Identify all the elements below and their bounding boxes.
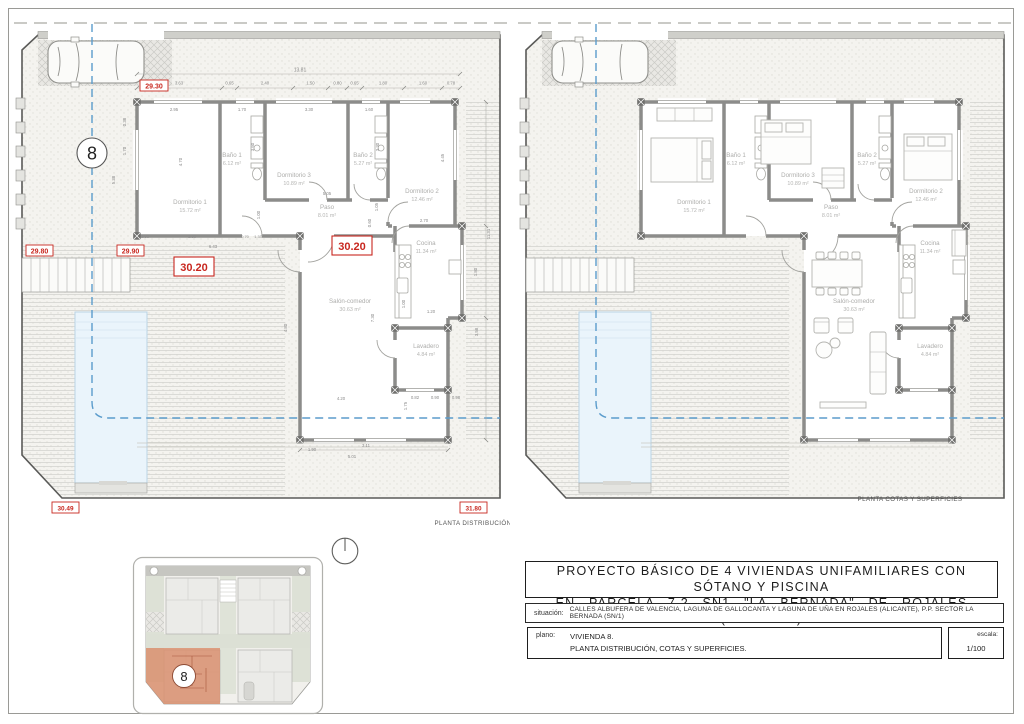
- svg-text:0.78: 0.78: [447, 81, 456, 86]
- svg-text:0.82: 0.82: [411, 395, 420, 400]
- plano-line1: VIVIENDA 8.: [570, 632, 613, 641]
- svg-text:1.60: 1.60: [419, 81, 428, 86]
- svg-text:0.80: 0.80: [333, 81, 342, 86]
- svg-text:13.81: 13.81: [294, 68, 307, 74]
- svg-text:3.30: 3.30: [375, 142, 380, 151]
- svg-text:5.05: 5.05: [323, 191, 332, 196]
- svg-text:1.75: 1.75: [403, 401, 408, 410]
- cota-29-90: 29.90: [122, 249, 140, 256]
- key-plan-house-number: 8: [180, 669, 187, 684]
- house-number-bubble: 8: [77, 138, 107, 168]
- left-plan-caption: PLANTA DISTRIBUCIÓN: [435, 520, 510, 527]
- svg-text:1.90: 1.90: [308, 447, 317, 452]
- svg-text:4.20: 4.20: [337, 396, 346, 401]
- cota-29-80: 29.80: [31, 249, 49, 256]
- svg-text:1.80: 1.80: [473, 267, 478, 276]
- project-title-line1: PROYECTO BÁSICO DE 4 VIVIENDAS UNIFAMILI…: [526, 563, 997, 595]
- cota-30-20-a: 30.20: [180, 262, 208, 274]
- svg-text:0.98: 0.98: [452, 395, 461, 400]
- svg-text:2.70: 2.70: [420, 218, 429, 223]
- svg-text:1.70: 1.70: [122, 146, 127, 155]
- svg-text:1.33: 1.33: [254, 234, 262, 239]
- svg-text:0.70: 0.70: [241, 234, 249, 239]
- cota-31-80: 31.80: [466, 506, 482, 513]
- svg-text:0.60: 0.60: [367, 218, 372, 227]
- svg-text:3.60: 3.60: [250, 142, 255, 151]
- situacion-box: situación: CALLES ALBUFERA DE VALENCIA, …: [525, 603, 1004, 623]
- svg-text:4.45: 4.45: [440, 153, 445, 162]
- key-plan: 8: [132, 556, 324, 716]
- svg-text:5.01: 5.01: [348, 454, 357, 459]
- svg-text:3.90: 3.90: [141, 234, 150, 239]
- svg-text:1.05: 1.05: [374, 202, 379, 211]
- svg-text:8: 8: [87, 144, 97, 164]
- situacion-label: situación:: [534, 610, 564, 617]
- svg-text:6.43: 6.43: [209, 244, 218, 249]
- svg-text:1.70: 1.70: [238, 107, 247, 112]
- svg-text:3.63: 3.63: [175, 81, 184, 86]
- svg-text:0.38: 0.38: [122, 117, 127, 126]
- svg-text:1.00: 1.00: [401, 299, 406, 308]
- svg-text:1.80: 1.80: [379, 81, 388, 86]
- svg-text:2.95: 2.95: [170, 107, 179, 112]
- svg-text:4.80: 4.80: [283, 323, 288, 332]
- plano-label: plano:: [536, 632, 555, 639]
- drawing-sheet: Dormitorio 1 15.72 m² Baño 1 6.12 m² Dor…: [0, 0, 1024, 724]
- escala-label: escala:: [977, 631, 998, 638]
- svg-text:3.30: 3.30: [188, 234, 197, 239]
- escala-value: 1/100: [949, 644, 1003, 653]
- north-arrow-icon: [330, 536, 360, 566]
- svg-text:5.38: 5.38: [111, 175, 116, 184]
- svg-text:1.00: 1.00: [256, 210, 261, 219]
- svg-text:3.11: 3.11: [362, 443, 371, 448]
- svg-text:1.60: 1.60: [365, 107, 374, 112]
- floor-plan-right: PLANTA COTAS Y SUPERFICIES: [518, 10, 1014, 530]
- svg-text:4.70: 4.70: [178, 157, 183, 166]
- svg-text:0.65: 0.65: [225, 81, 234, 86]
- floor-plan-left: Dormitorio 1 15.72 m² Baño 1 6.12 m² Dor…: [14, 10, 510, 530]
- situacion-value: CALLES ALBUFERA DE VALENCIA, LAGUNA DE G…: [570, 606, 1003, 620]
- project-title-box: PROYECTO BÁSICO DE 4 VIVIENDAS UNIFAMILI…: [525, 561, 998, 598]
- svg-text:1.20: 1.20: [427, 309, 436, 314]
- plano-line2: PLANTA DISTRIBUCIÓN, COTAS Y SUPERFICIES…: [570, 644, 747, 653]
- cota-30-49: 30.49: [58, 506, 74, 513]
- cota-29-30: 29.30: [145, 84, 163, 91]
- cota-30-20-b: 30.20: [338, 241, 366, 253]
- svg-text:11.31: 11.31: [486, 228, 491, 239]
- svg-text:7.30: 7.30: [370, 313, 375, 322]
- plano-box: plano: VIVIENDA 8. PLANTA DISTRIBUCIÓN, …: [527, 627, 942, 659]
- escala-box: escala: 1/100: [948, 627, 1004, 659]
- svg-text:3.30: 3.30: [305, 107, 314, 112]
- svg-text:0.90: 0.90: [431, 395, 440, 400]
- svg-text:2.40: 2.40: [261, 81, 270, 86]
- svg-text:3.58: 3.58: [474, 327, 479, 336]
- right-plan-caption: PLANTA COTAS Y SUPERFICIES: [858, 496, 963, 503]
- svg-text:0.65: 0.65: [350, 81, 359, 86]
- svg-text:1.50: 1.50: [306, 81, 315, 86]
